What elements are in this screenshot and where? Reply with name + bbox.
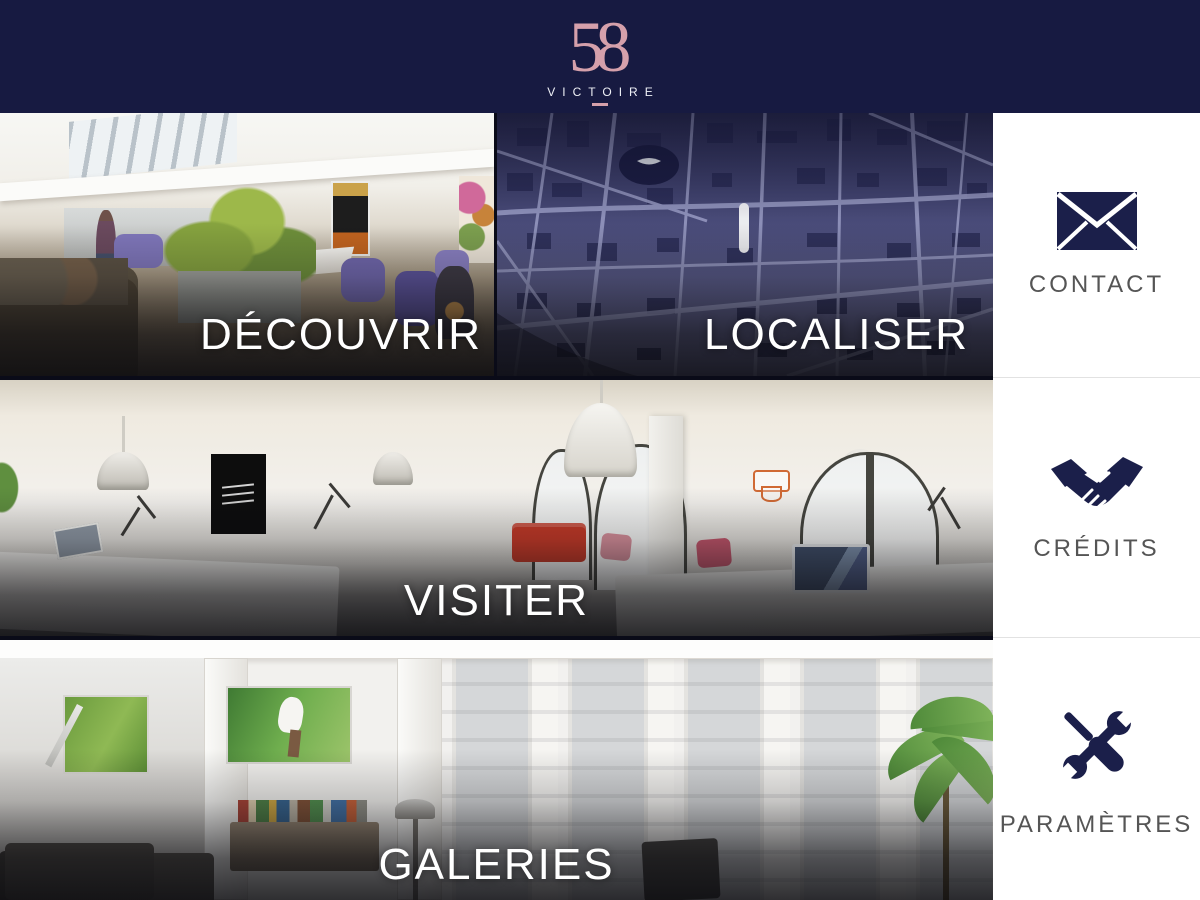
blackboard-poster-shape	[211, 454, 267, 533]
handshake-icon	[1049, 453, 1145, 515]
sidebar: CONTACT CRÉDITS	[993, 113, 1200, 900]
golfer-silhouette	[277, 695, 306, 734]
red-sofa-shape	[512, 523, 585, 561]
plant-shape	[0, 457, 22, 518]
cushions-shape	[0, 258, 128, 305]
lamp-cord-shape	[122, 416, 125, 452]
purple-armchair-shape	[341, 258, 385, 303]
books-row-shape	[238, 800, 367, 823]
crown-molding-shape	[0, 640, 993, 659]
sidebar-item-label: CONTACT	[1029, 271, 1164, 299]
sidebar-item-credits[interactable]: CRÉDITS	[993, 378, 1200, 638]
wall-art-shape	[459, 176, 494, 263]
app-header: 58 VICTOIRE	[0, 0, 1200, 113]
pink-chair-shape	[599, 532, 631, 561]
tile-label: GALERIES	[0, 840, 993, 890]
golf-painting	[63, 695, 149, 774]
sidebar-item-label: CRÉDITS	[1033, 535, 1159, 563]
pink-chair-shape	[696, 537, 732, 568]
lamp-cord-shape	[600, 380, 603, 403]
app-root: 58 VICTOIRE DÉCOUVRIR	[0, 0, 1200, 900]
tile-decouvrir[interactable]: DÉCOUVRIR	[0, 113, 494, 376]
floor-lamp-shade-shape	[395, 799, 435, 820]
tile-localiser[interactable]: LOCALISER	[497, 113, 993, 376]
tile-label: DÉCOUVRIR	[200, 310, 482, 360]
wall-art-shape	[331, 181, 370, 256]
logo-underline	[592, 103, 608, 106]
tile-label: VISITER	[0, 576, 993, 626]
golfer-legs-shape	[288, 729, 302, 757]
tools-icon	[1051, 699, 1143, 791]
golfer-painting	[226, 686, 351, 764]
envelope-icon	[1056, 191, 1138, 251]
logo-name: VICTOIRE	[540, 86, 659, 98]
sidebar-item-contact[interactable]: CONTACT	[993, 113, 1200, 378]
basketball-hoop-shape	[761, 486, 783, 502]
sidebar-item-parametres[interactable]: PARAMÈTRES	[993, 638, 1200, 899]
brand-logo: 58 VICTOIRE	[540, 7, 659, 106]
tile-galeries[interactable]: GALERIES	[0, 640, 993, 900]
logo-number: 58	[569, 11, 632, 83]
sidebar-item-label: PARAMÈTRES	[1000, 811, 1194, 839]
tile-label: LOCALISER	[704, 310, 969, 360]
tile-visiter[interactable]: VISITER	[0, 380, 993, 636]
